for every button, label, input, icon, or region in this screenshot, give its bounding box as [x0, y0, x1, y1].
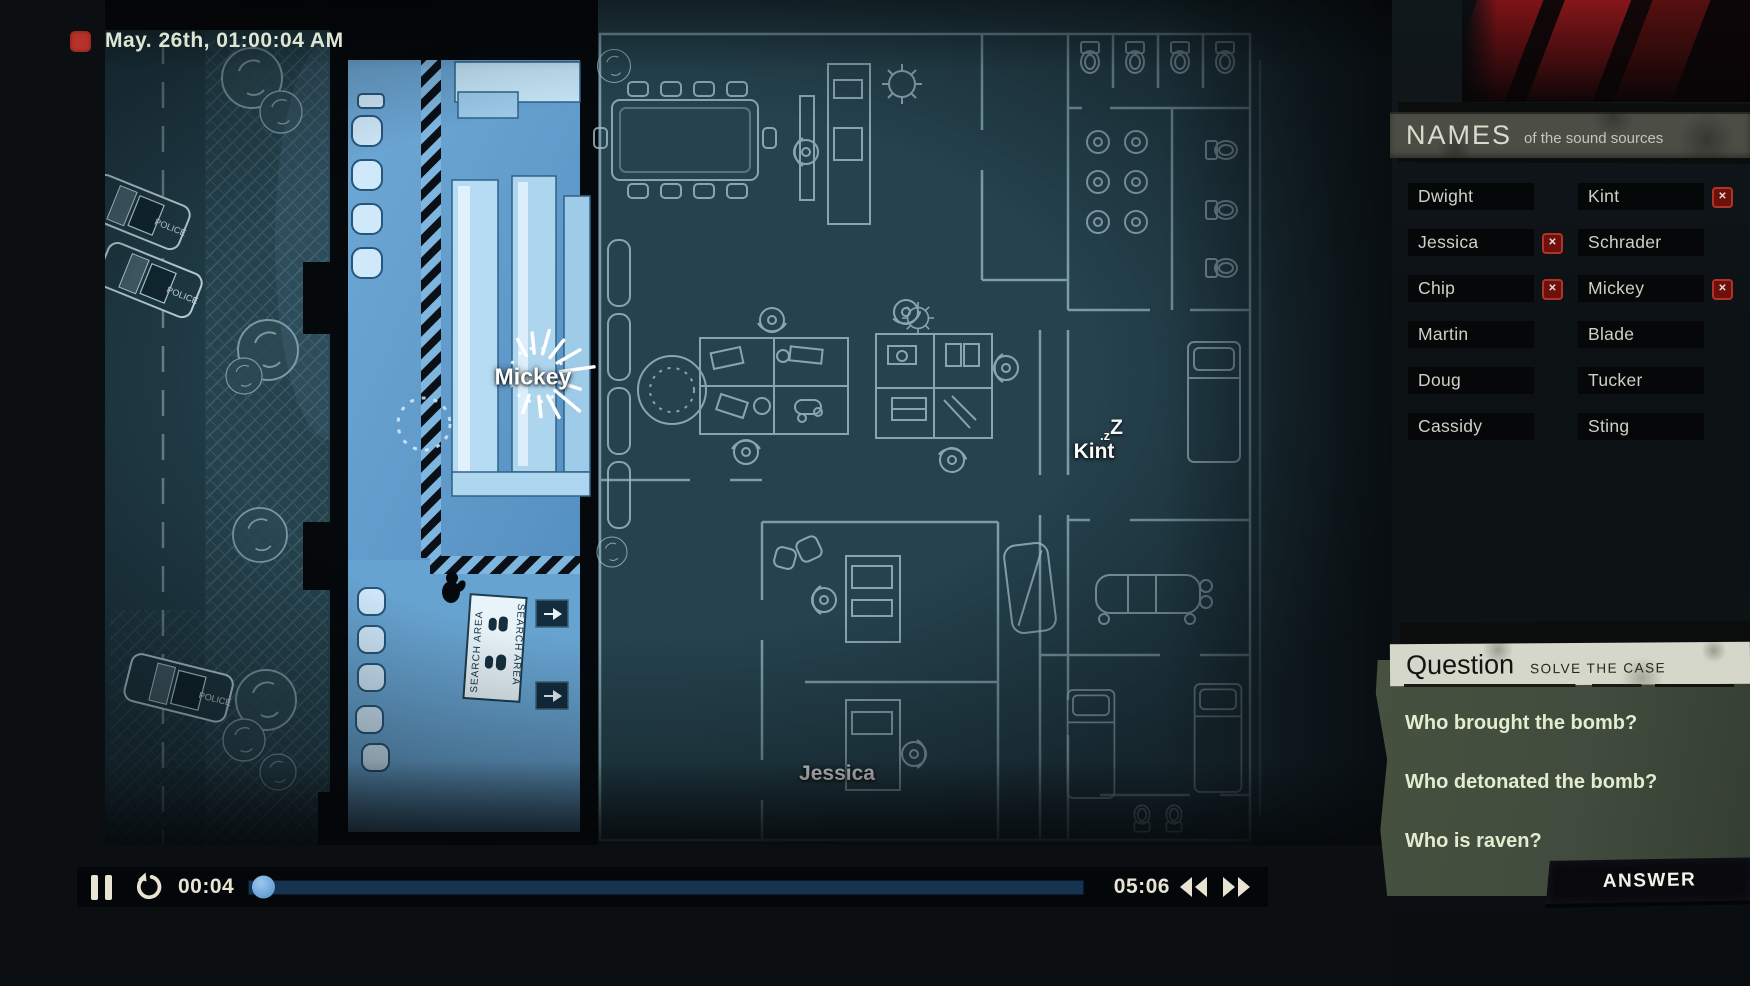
bar-shelf	[358, 94, 384, 108]
character-name: Jessica	[799, 762, 875, 785]
hazard-strip-vertical	[421, 60, 441, 558]
mute-cell	[1542, 413, 1578, 441]
name-tag-kint[interactable]: Kint	[1578, 183, 1704, 210]
names-panel-header: NAMES of the sound sources	[1390, 112, 1750, 158]
total-time: 05:06	[1114, 875, 1170, 899]
character-name: Mickey	[495, 364, 572, 390]
top-left-shadow	[105, 0, 337, 30]
name-tag-cassidy[interactable]: Cassidy	[1408, 413, 1534, 440]
mute-icon[interactable]: ✕	[1712, 187, 1733, 208]
replay-button[interactable]	[132, 872, 162, 902]
name-tag-mickey[interactable]: Mickey	[1578, 275, 1704, 302]
current-time: 00:04	[178, 875, 234, 899]
search-area-sign: SEARCH AREA SEARCH AREA	[463, 594, 526, 702]
bar-stool	[352, 116, 382, 146]
lounge-stool	[356, 706, 383, 733]
zz-small: .z	[1100, 428, 1110, 443]
replay-icon	[132, 872, 162, 902]
lounge-stool	[358, 588, 385, 615]
character-marker-mickey[interactable]: Mickey	[495, 364, 572, 391]
pause-button[interactable]	[91, 875, 112, 900]
fast-forward-button[interactable]	[1220, 875, 1254, 899]
question-item-2[interactable]: Who detonated the bomb?	[1405, 753, 1735, 812]
bar-stool	[352, 160, 382, 190]
mute-icon[interactable]: ✕	[1542, 279, 1563, 300]
bar-counter	[452, 472, 590, 496]
question-subtitle: SOLVE THE CASE	[1530, 652, 1666, 676]
mute-cell	[1712, 413, 1750, 441]
question-header-underline	[1404, 684, 1734, 687]
tree	[223, 719, 265, 761]
timestamp-text: May. 26th, 01:00:04 AM	[105, 29, 344, 53]
blueprint-svg: POLICE POLICE POLICE	[105, 0, 1395, 845]
playback-bar: 00:04 05:06	[77, 867, 1268, 907]
mute-icon[interactable]: ✕	[1712, 279, 1733, 300]
progress-knob[interactable]	[252, 876, 275, 899]
pavement-hatch	[110, 610, 206, 845]
mute-cell	[1712, 321, 1750, 349]
record-indicator-icon	[70, 31, 91, 52]
names-subtitle: of the sound sources	[1524, 124, 1663, 147]
mute-cell	[1542, 367, 1578, 395]
name-tag-martin[interactable]: Martin	[1408, 321, 1534, 348]
zz-big: Z	[1110, 416, 1123, 439]
answer-button-label: ANSWER	[1603, 869, 1697, 893]
names-title: NAMES	[1406, 120, 1512, 151]
question-title: Question	[1406, 649, 1514, 681]
question-list: Who brought the bomb? Who detonated the …	[1405, 694, 1735, 871]
arrow-right-button[interactable]	[536, 600, 568, 627]
name-tag-doug[interactable]: Doug	[1408, 367, 1534, 394]
name-tag-jessica[interactable]: Jessica	[1408, 229, 1534, 256]
name-tag-schrader[interactable]: Schrader	[1578, 229, 1704, 256]
recording-timestamp: May. 26th, 01:00:04 AM	[70, 29, 344, 53]
blueprint-map[interactable]: POLICE POLICE POLICE	[105, 0, 1395, 845]
bar-counter	[458, 92, 518, 118]
name-tag-tucker[interactable]: Tucker	[1578, 367, 1704, 394]
character-marker-jessica[interactable]: Jessica	[799, 762, 875, 786]
bar-counter	[564, 196, 590, 472]
question-item-1[interactable]: Who brought the bomb?	[1405, 694, 1735, 753]
bar-stool	[352, 204, 382, 234]
arrow-right-button[interactable]	[536, 682, 568, 709]
name-tag-dwight[interactable]: Dwight	[1408, 183, 1534, 210]
mute-cell	[1542, 183, 1578, 211]
lounge-stool	[358, 626, 385, 653]
tree	[233, 508, 287, 562]
names-list: Dwight Kint ✕ Jessica ✕ Schrader Chip ✕ …	[1408, 183, 1750, 441]
progress-track[interactable]	[248, 880, 1084, 895]
sleeping-zz-icon: .zZ	[1100, 416, 1123, 451]
mute-cell	[1712, 367, 1750, 395]
mute-icon[interactable]: ✕	[1542, 233, 1563, 254]
mute-cell	[1542, 321, 1578, 349]
lounge-stool	[358, 664, 385, 691]
name-tag-blade[interactable]: Blade	[1578, 321, 1704, 348]
mute-cell	[1712, 229, 1750, 257]
hazard-strip-horizontal	[430, 556, 580, 574]
rewind-button[interactable]	[1176, 875, 1210, 899]
question-panel-header: Question SOLVE THE CASE	[1390, 642, 1750, 687]
lit-bar-room: SEARCH AREA SEARCH AREA	[303, 0, 598, 845]
lounge-stool	[362, 744, 389, 771]
name-tag-chip[interactable]: Chip	[1408, 275, 1534, 302]
corner-stripes-decoration	[1462, 0, 1750, 102]
tree	[226, 358, 262, 394]
tree	[260, 754, 296, 790]
bar-stool	[352, 248, 382, 278]
name-tag-sting[interactable]: Sting	[1578, 413, 1704, 440]
answer-button[interactable]: ANSWER	[1546, 857, 1750, 904]
